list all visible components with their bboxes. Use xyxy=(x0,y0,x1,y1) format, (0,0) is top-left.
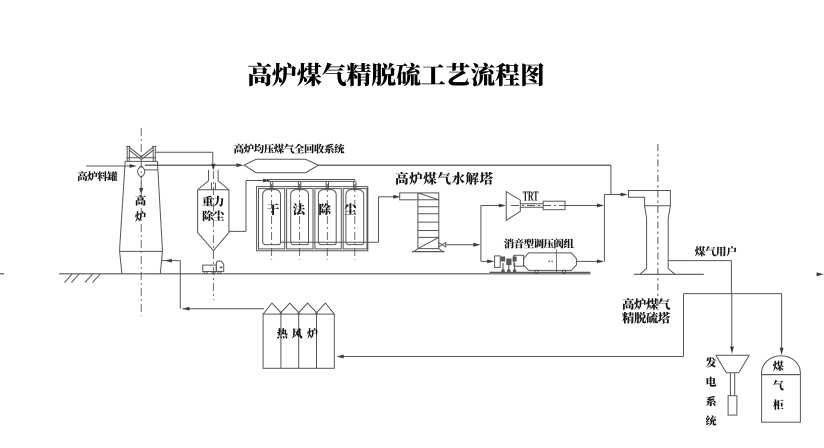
svg-text:TRT: TRT xyxy=(523,189,539,204)
